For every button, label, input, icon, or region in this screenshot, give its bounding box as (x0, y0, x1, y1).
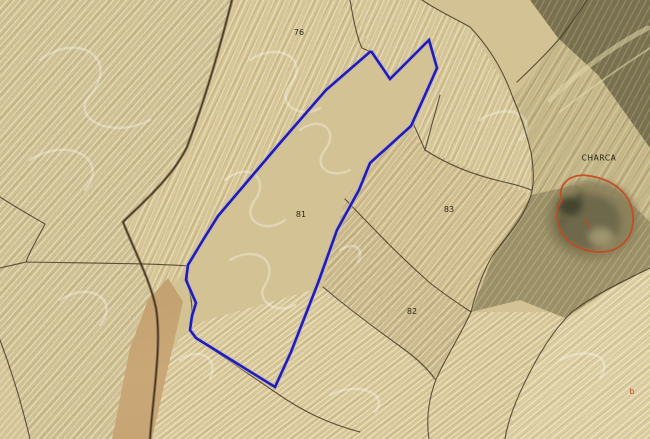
cadastral-line (428, 312, 471, 439)
cadastral-line (0, 197, 45, 268)
cadastral-line (350, 0, 371, 52)
furrow-trace (560, 353, 604, 378)
parcel-outline-halo (186, 40, 437, 387)
pond-speckle (576, 191, 584, 199)
cadastral-line (422, 0, 533, 312)
furrow-trace (480, 111, 526, 140)
cadastral-line (26, 262, 188, 266)
furrow-trace (60, 292, 106, 325)
parcel-outline[interactable] (186, 40, 437, 387)
subparcel-label-b: b (629, 388, 634, 396)
pond-speckle (559, 219, 565, 225)
furrow-trace (230, 254, 295, 308)
furrow-trace (30, 150, 93, 190)
parcel-label-83: 83 (444, 206, 454, 214)
highlighted-parcel[interactable] (186, 40, 437, 387)
furrow-trace (330, 389, 379, 412)
parcel-label-82: 82 (407, 308, 417, 316)
furrow-trace (250, 52, 320, 112)
pond-light-patch (589, 228, 613, 246)
cadastral-line (425, 150, 531, 190)
place-label-charca: CHARCA (582, 154, 617, 162)
aerial-map[interactable]: 76 81 83 82 CHARCA b (0, 0, 650, 439)
parcel-label-81: 81 (296, 211, 306, 219)
track-trace (550, 28, 648, 100)
furrow-trace (40, 48, 150, 128)
cadastral-line (323, 287, 435, 379)
cadastral-line (413, 95, 440, 150)
furrow-trace (300, 124, 350, 173)
furrow-trace (180, 354, 213, 378)
map-overlay (0, 0, 650, 439)
furrow-trace (340, 246, 360, 262)
cadastral-line (345, 199, 471, 312)
cadastral-line (0, 340, 30, 439)
cadastral-line (517, 0, 587, 82)
parcel-label-76: 76 (294, 29, 304, 37)
